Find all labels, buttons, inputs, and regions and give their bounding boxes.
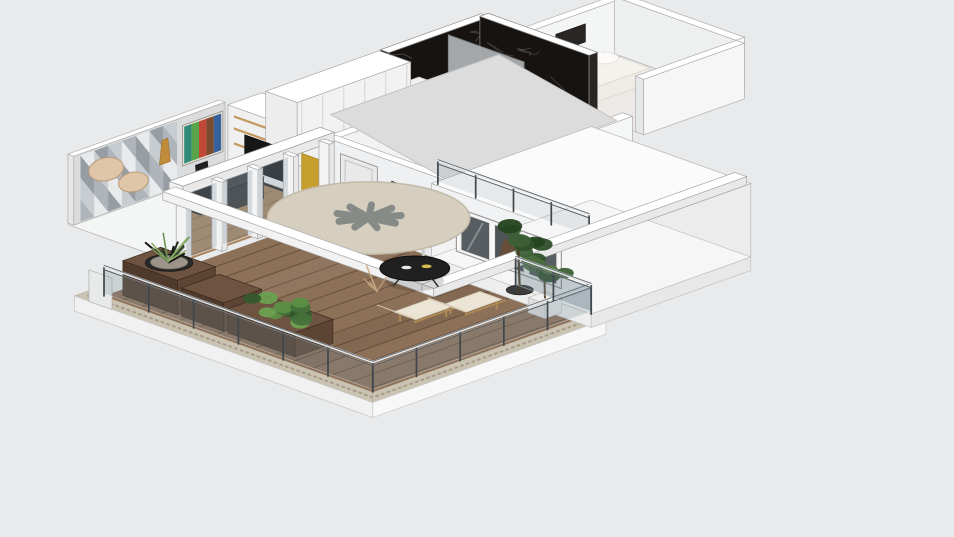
coffee-table[interactable] xyxy=(380,256,450,281)
floorplan-viewport[interactable] xyxy=(0,0,954,537)
floorplan-3d-canvas[interactable] xyxy=(0,0,954,537)
coffee-table-cup-2 xyxy=(421,264,431,268)
coffee-table-cup-1 xyxy=(401,266,411,270)
